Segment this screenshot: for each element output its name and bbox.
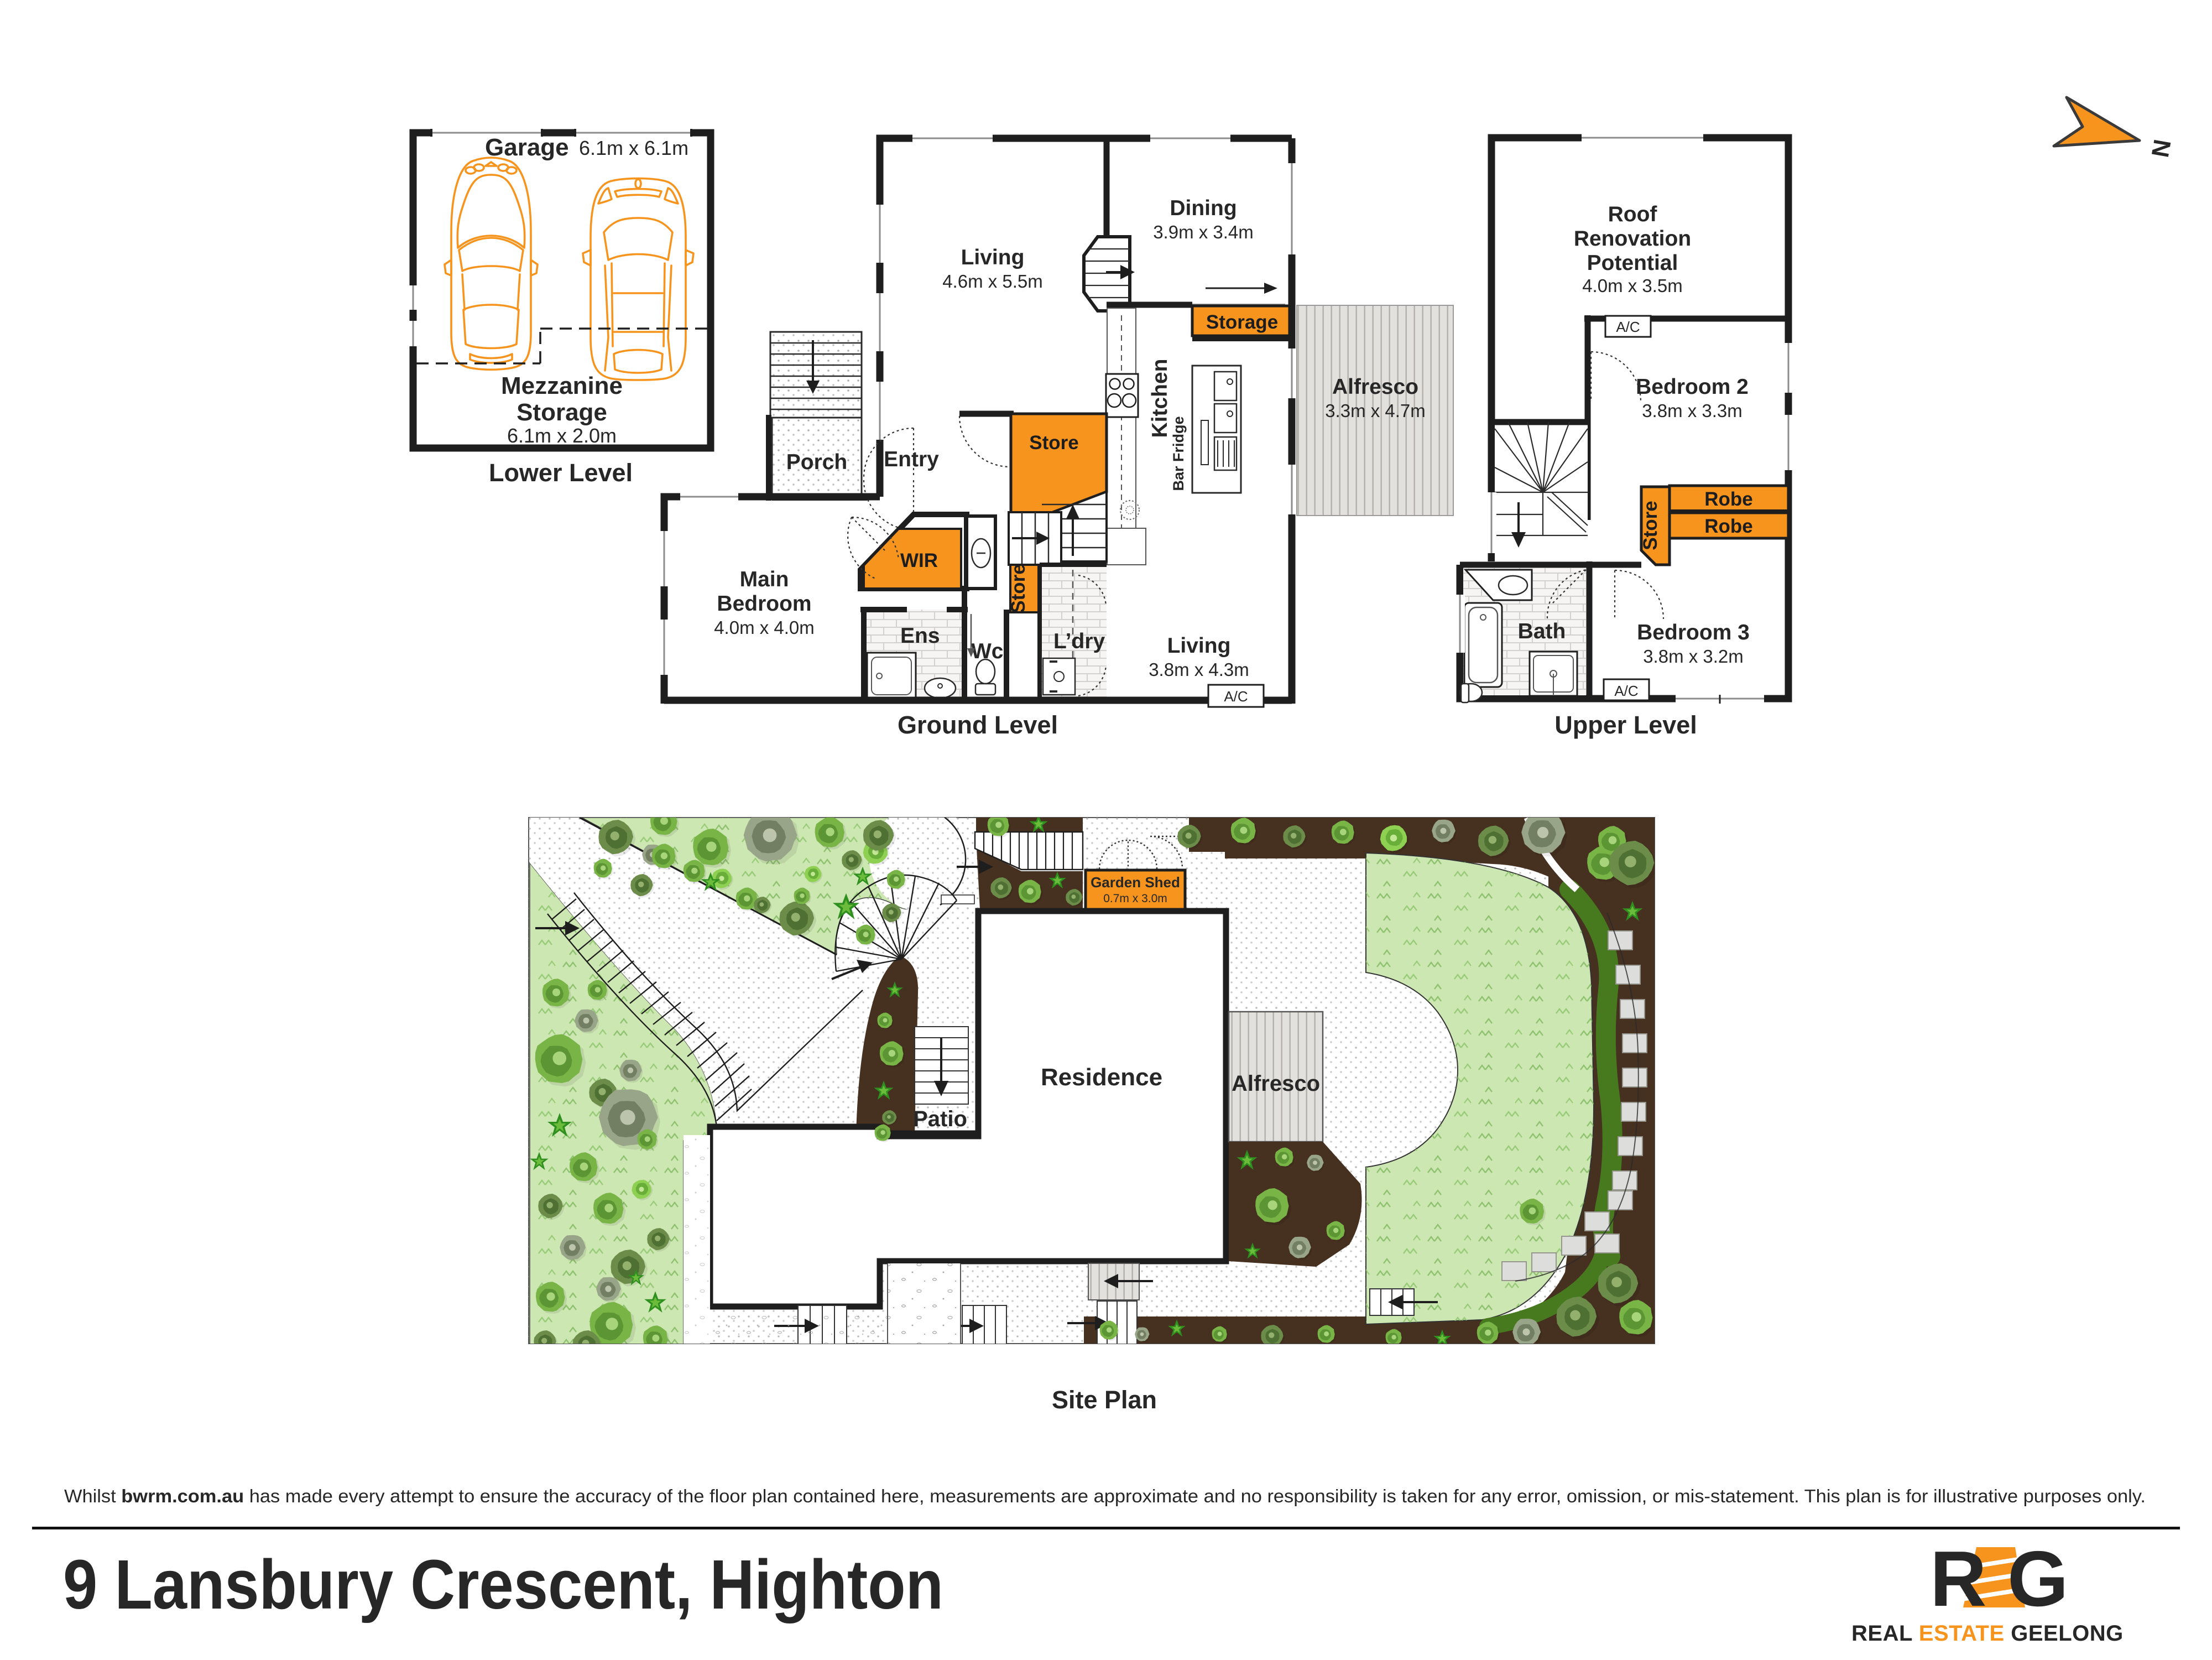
svg-text:A/C: A/C	[1224, 688, 1248, 705]
svg-text:Robe: Robe	[1704, 488, 1753, 510]
svg-text:Bedroom 3: Bedroom 3	[1637, 621, 1750, 644]
svg-text:3.3m x 4.7m: 3.3m x 4.7m	[1325, 400, 1426, 421]
svg-text:4.0m x 3.5m: 4.0m x 3.5m	[1582, 275, 1683, 296]
svg-text:Dining: Dining	[1170, 196, 1237, 220]
svg-text:6.1m x 6.1m: 6.1m x 6.1m	[579, 137, 688, 159]
svg-text:REAL ESTATE GEELONG: REAL ESTATE GEELONG	[1851, 1621, 2124, 1646]
svg-text:Kitchen: Kitchen	[1148, 358, 1172, 438]
svg-text:Upper Level: Upper Level	[1554, 711, 1697, 739]
svg-text:Mezzanine: Mezzanine	[501, 372, 623, 399]
svg-text:Storage: Storage	[517, 399, 607, 426]
svg-text:Entry: Entry	[884, 447, 939, 471]
svg-text:Residence: Residence	[1041, 1064, 1162, 1091]
svg-text:Ens: Ens	[900, 624, 940, 648]
svg-text:WIR: WIR	[900, 550, 938, 571]
svg-text:Roof: Roof	[1608, 202, 1658, 226]
svg-text:A/C: A/C	[1616, 319, 1640, 335]
svg-text:Storage: Storage	[1206, 311, 1278, 333]
svg-text:Alfresco: Alfresco	[1232, 1071, 1320, 1096]
svg-text:Garden Shed: Garden Shed	[1091, 874, 1180, 891]
svg-text:G: G	[2007, 1535, 2068, 1623]
svg-text:Bedroom: Bedroom	[717, 592, 811, 616]
svg-text:Ground Level: Ground Level	[898, 711, 1058, 739]
svg-text:Garage: Garage	[485, 134, 569, 161]
svg-text:Living: Living	[1167, 634, 1231, 658]
svg-text:Living: Living	[961, 246, 1025, 269]
svg-text:Alfresco: Alfresco	[1332, 375, 1418, 399]
svg-text:Store: Store	[1029, 432, 1078, 454]
svg-text:9 Lansbury Crescent, Highton: 9 Lansbury Crescent, Highton	[63, 1545, 943, 1623]
svg-text:R: R	[1930, 1535, 1987, 1623]
svg-text:Robe: Robe	[1704, 516, 1753, 537]
svg-text:4.6m x 5.5m: 4.6m x 5.5m	[942, 271, 1043, 292]
svg-text:3.9m x 3.4m: 3.9m x 3.4m	[1153, 222, 1254, 242]
svg-text:Bedroom 2: Bedroom 2	[1636, 375, 1749, 399]
svg-text:Patio: Patio	[913, 1107, 967, 1131]
svg-text:Renovation: Renovation	[1574, 227, 1691, 251]
svg-text:Potential: Potential	[1587, 251, 1678, 275]
svg-text:Whilst bwrm.com.au has made ev: Whilst bwrm.com.au has made every attemp…	[64, 1486, 2146, 1506]
svg-text:6.1m x 2.0m: 6.1m x 2.0m	[507, 424, 617, 447]
svg-text:Bar Fridge: Bar Fridge	[1170, 416, 1187, 491]
svg-text:Site Plan: Site Plan	[1052, 1386, 1157, 1414]
svg-text:Store: Store	[1640, 501, 1661, 550]
svg-text:Porch: Porch	[786, 450, 848, 474]
svg-text:Lower Level: Lower Level	[489, 459, 633, 487]
svg-text:Bath: Bath	[1518, 620, 1566, 643]
svg-text:A/C: A/C	[1614, 683, 1638, 699]
svg-text:3.8m x 3.2m: 3.8m x 3.2m	[1643, 646, 1744, 667]
svg-text:4.0m x 4.0m: 4.0m x 4.0m	[714, 617, 815, 638]
svg-text:3.8m x 4.3m: 3.8m x 4.3m	[1149, 659, 1249, 680]
svg-text:0.7m x 3.0m: 0.7m x 3.0m	[1103, 892, 1167, 905]
svg-text:L’dry: L’dry	[1053, 629, 1105, 653]
svg-text:Main: Main	[740, 568, 789, 591]
svg-text:3.8m x 3.3m: 3.8m x 3.3m	[1642, 400, 1743, 421]
svg-text:Store: Store	[1008, 564, 1029, 613]
